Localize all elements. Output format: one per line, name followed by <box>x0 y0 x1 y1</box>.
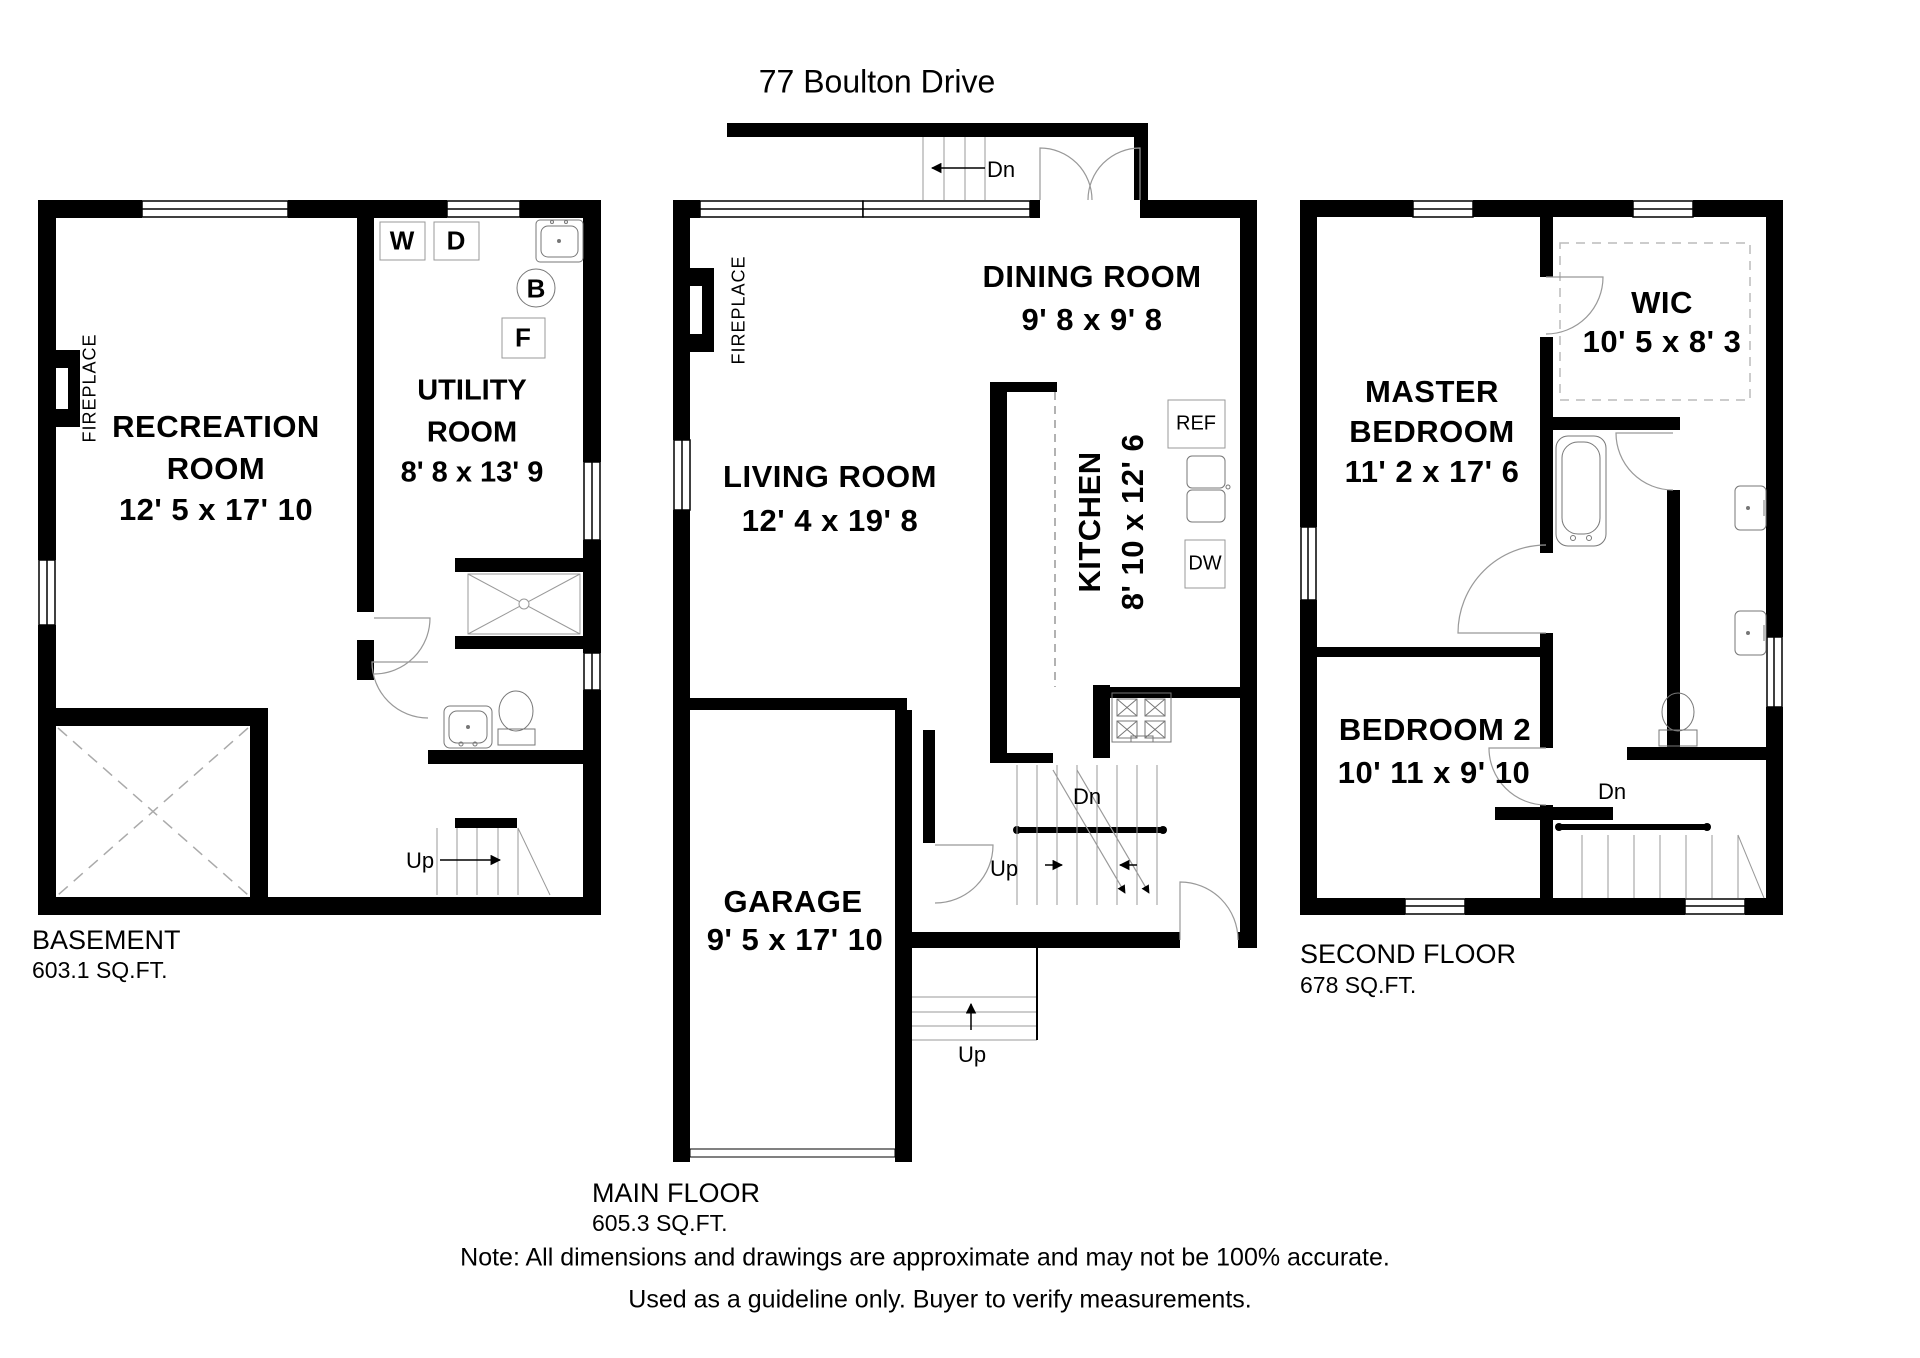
second-dn-label: Dn <box>1598 779 1626 805</box>
basement-stairs <box>437 828 550 895</box>
main-up-label: Up <box>990 856 1018 882</box>
basement-up-label: Up <box>406 848 434 874</box>
master-bedroom-label2: BEDROOM <box>1349 414 1514 450</box>
front-door <box>1040 148 1140 200</box>
floorplan-page: 77 Boulton Drive RECREATION ROOM 12' 5 x… <box>0 0 1920 1358</box>
wic-label: WIC <box>1631 285 1693 321</box>
washer-label: W <box>390 226 415 257</box>
second-floor-area: 678 SQ.FT. <box>1300 972 1416 999</box>
utility-room-label2: ROOM <box>427 417 517 450</box>
basement-fireplace-label: FIREPLACE <box>80 333 101 442</box>
second-floor-plan <box>1300 200 1783 915</box>
porch-steps <box>923 137 985 200</box>
second-floor-name: SECOND FLOOR <box>1300 939 1516 970</box>
floorplan-drawing <box>0 0 1920 1358</box>
main-doors <box>935 845 1238 940</box>
recreation-room-label2: ROOM <box>167 451 265 487</box>
page-title: 77 Boulton Drive <box>759 64 996 101</box>
kitchen-label: KITCHEN <box>1072 451 1108 592</box>
dining-room-dims: 9' 8 x 9' 8 <box>1022 302 1163 338</box>
porch-dn-label: Dn <box>987 157 1015 183</box>
disclaimer-line1: Note: All dimensions and drawings are ap… <box>460 1244 1390 1273</box>
main-floor-name: MAIN FLOOR <box>592 1178 760 1209</box>
master-bedroom-label: MASTER <box>1365 374 1499 410</box>
bedroom2-label: BEDROOM 2 <box>1339 712 1531 748</box>
utility-room-dims: 8' 8 x 13' 9 <box>401 457 544 490</box>
garage-door <box>690 1149 895 1157</box>
recreation-room-dims: 12' 5 x 17' 10 <box>119 492 313 528</box>
dishwasher-label: DW <box>1188 553 1221 576</box>
vanity-sink-upper <box>1735 486 1766 530</box>
wic-closet-outline <box>1560 243 1750 400</box>
toilet <box>498 691 535 745</box>
vanity-sink-lower <box>1735 611 1766 655</box>
master-bedroom-dims: 11' 2 x 17' 6 <box>1345 454 1520 490</box>
garage-dims: 9' 5 x 17' 10 <box>707 922 883 958</box>
dining-room-label: DINING ROOM <box>982 259 1201 295</box>
living-room-dims: 12' 4 x 19' 8 <box>742 503 918 539</box>
fridge-label: REF <box>1176 413 1216 436</box>
bathtub <box>1556 436 1606 546</box>
second-walls <box>1300 200 1783 915</box>
basement-walls <box>38 200 601 915</box>
disclaimer-line2: Used as a guideline only. Buyer to verif… <box>628 1286 1251 1315</box>
dryer-label: D <box>447 226 466 257</box>
stove <box>1112 693 1171 742</box>
second-stairs <box>1582 835 1764 898</box>
laundry-sink <box>536 220 583 262</box>
side-entry-steps <box>912 948 1037 1040</box>
bathroom-sink <box>444 706 492 748</box>
main-floor-area: 605.3 SQ.FT. <box>592 1210 728 1237</box>
bedroom2-dims: 10' 11 x 9' 10 <box>1338 755 1530 791</box>
furnace-label: F <box>515 323 531 354</box>
kitchen-dims: 8' 10 x 12' 6 <box>1115 434 1151 610</box>
entry-up-label: Up <box>958 1042 986 1068</box>
crawl-space <box>58 728 248 895</box>
basement-name: BASEMENT <box>32 925 181 956</box>
basement-doors <box>372 618 430 718</box>
basement-plan <box>38 200 601 915</box>
garage-label: GARAGE <box>723 884 862 920</box>
utility-room-label: UTILITY <box>417 375 527 408</box>
basement-area: 603.1 SQ.FT. <box>32 957 168 984</box>
recreation-room-label: RECREATION <box>112 409 320 445</box>
shower <box>468 574 580 634</box>
kitchen-sink <box>1187 456 1230 522</box>
main-fireplace-label: FIREPLACE <box>729 255 750 364</box>
living-room-label: LIVING ROOM <box>723 459 937 495</box>
boiler-label: B <box>527 274 546 305</box>
wic-dims: 10' 5 x 8' 3 <box>1583 324 1742 360</box>
main-dn-label: Dn <box>1073 784 1101 810</box>
